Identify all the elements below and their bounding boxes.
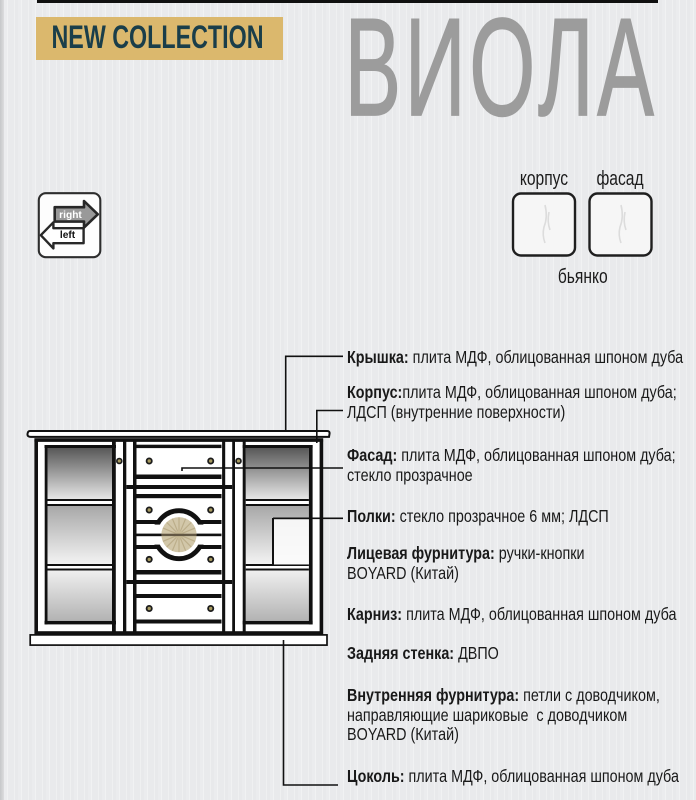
svg-text:NEW COLLECTION: NEW COLLECTION <box>52 19 264 55</box>
svg-text:ВИОЛА: ВИОЛА <box>345 0 658 145</box>
